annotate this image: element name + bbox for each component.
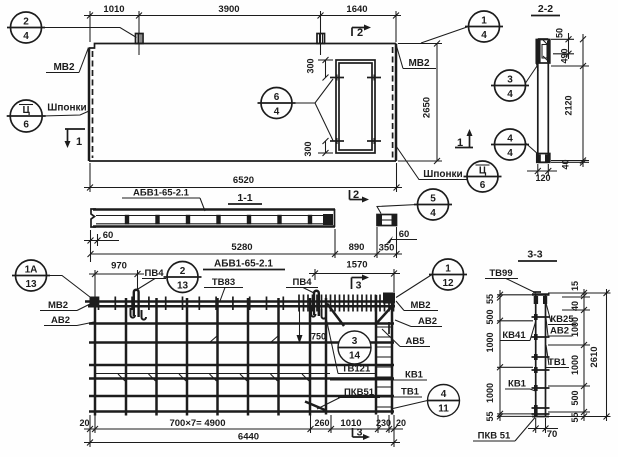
- svg-text:1000: 1000: [570, 355, 580, 375]
- svg-text:МВ2: МВ2: [48, 300, 68, 311]
- svg-text:55: 55: [570, 412, 580, 422]
- svg-text:13: 13: [25, 279, 37, 290]
- svg-text:55: 55: [485, 411, 495, 421]
- svg-text:Шпонки: Шпонки: [47, 103, 86, 114]
- svg-text:ТВ1: ТВ1: [548, 357, 567, 368]
- svg-text:МВ2: МВ2: [53, 62, 75, 73]
- svg-text:2: 2: [353, 189, 359, 201]
- svg-text:2610: 2610: [589, 346, 600, 367]
- svg-text:1640: 1640: [346, 4, 367, 15]
- svg-text:970: 970: [111, 261, 127, 272]
- svg-text:40: 40: [561, 159, 571, 169]
- svg-text:60: 60: [399, 229, 410, 240]
- svg-text:70: 70: [547, 429, 558, 440]
- svg-text:1: 1: [445, 263, 451, 274]
- svg-text:4: 4: [274, 107, 280, 118]
- svg-text:2: 2: [23, 16, 29, 27]
- svg-text:13: 13: [177, 281, 189, 292]
- svg-text:4: 4: [23, 31, 29, 42]
- svg-text:300: 300: [303, 141, 313, 156]
- svg-text:2650: 2650: [422, 97, 433, 118]
- svg-text:20: 20: [396, 418, 406, 428]
- svg-text:АВ2: АВ2: [550, 326, 569, 337]
- svg-text:ПВ4: ПВ4: [145, 268, 165, 279]
- svg-text:Шпонки: Шпонки: [423, 169, 462, 180]
- svg-text:1: 1: [457, 137, 463, 149]
- svg-text:АВ2: АВ2: [418, 316, 437, 327]
- svg-text:230: 230: [376, 418, 391, 428]
- svg-text:5: 5: [430, 193, 436, 204]
- svg-text:1010: 1010: [103, 4, 124, 15]
- svg-text:14: 14: [349, 351, 361, 362]
- svg-text:260: 260: [314, 418, 329, 428]
- svg-text:МВ2: МВ2: [408, 58, 430, 69]
- svg-text:2120: 2120: [564, 95, 574, 115]
- svg-text:Ц: Ц: [23, 105, 31, 116]
- svg-text:1А: 1А: [25, 264, 38, 275]
- svg-text:3: 3: [356, 280, 362, 292]
- svg-text:АВ5: АВ5: [405, 336, 425, 347]
- svg-text:КВ1: КВ1: [508, 379, 527, 390]
- svg-text:1570: 1570: [346, 260, 367, 271]
- svg-text:КВ1: КВ1: [405, 370, 424, 381]
- svg-text:ТВ99: ТВ99: [489, 268, 512, 279]
- svg-text:3900: 3900: [218, 4, 239, 15]
- svg-text:2-2: 2-2: [538, 3, 553, 15]
- svg-text:4: 4: [507, 133, 513, 144]
- svg-text:500: 500: [570, 390, 580, 405]
- svg-text:МВ2: МВ2: [410, 300, 430, 311]
- svg-text:11: 11: [438, 404, 449, 415]
- svg-text:4: 4: [481, 30, 487, 41]
- svg-text:1000: 1000: [485, 332, 495, 352]
- svg-text:890: 890: [349, 242, 365, 253]
- svg-text:КВ25: КВ25: [550, 314, 574, 325]
- svg-text:ПВ4: ПВ4: [293, 277, 313, 288]
- svg-text:5280: 5280: [231, 242, 252, 253]
- svg-text:2: 2: [357, 27, 363, 39]
- svg-text:1: 1: [481, 15, 487, 26]
- svg-text:ТВ83: ТВ83: [212, 277, 235, 288]
- svg-text:АВ2: АВ2: [51, 315, 70, 326]
- svg-text:6: 6: [480, 180, 486, 191]
- svg-text:50: 50: [555, 28, 565, 38]
- svg-text:4: 4: [430, 208, 436, 219]
- svg-text:40: 40: [570, 301, 580, 311]
- svg-text:2: 2: [180, 266, 186, 277]
- svg-text:120: 120: [535, 173, 550, 183]
- svg-text:ПКВ 51: ПКВ 51: [478, 431, 511, 442]
- svg-text:500: 500: [485, 309, 495, 324]
- svg-text:ТВ121: ТВ121: [342, 364, 371, 375]
- svg-text:3: 3: [352, 336, 358, 347]
- svg-text:1-1: 1-1: [237, 192, 252, 204]
- svg-text:750: 750: [311, 332, 326, 342]
- svg-text:1010: 1010: [340, 418, 361, 429]
- svg-text:ТВ1: ТВ1: [401, 387, 420, 398]
- svg-text:55: 55: [485, 294, 495, 304]
- svg-text:АБВ1-65-2.1: АБВ1-65-2.1: [133, 188, 190, 199]
- svg-text:700×7= 4900: 700×7= 4900: [169, 418, 225, 429]
- svg-text:6: 6: [274, 92, 280, 103]
- svg-text:4: 4: [441, 389, 447, 400]
- svg-text:20: 20: [79, 418, 89, 428]
- svg-text:300: 300: [306, 58, 316, 73]
- svg-text:ПКВ51: ПКВ51: [344, 387, 375, 398]
- svg-text:6520: 6520: [233, 175, 254, 186]
- svg-text:Ц: Ц: [479, 165, 487, 176]
- svg-text:60: 60: [103, 230, 114, 241]
- svg-text:1: 1: [76, 136, 82, 148]
- svg-text:КВ41: КВ41: [502, 330, 526, 341]
- svg-text:АБВ1-65-2.1: АБВ1-65-2.1: [214, 259, 273, 270]
- svg-text:4: 4: [507, 89, 513, 100]
- svg-text:6440: 6440: [238, 432, 259, 443]
- svg-text:6: 6: [23, 120, 29, 131]
- svg-text:3-3: 3-3: [527, 249, 542, 261]
- svg-text:350: 350: [379, 243, 395, 254]
- svg-text:490: 490: [560, 48, 570, 63]
- svg-text:15: 15: [570, 281, 580, 291]
- svg-text:4: 4: [507, 148, 513, 159]
- svg-text:12: 12: [442, 278, 454, 289]
- svg-text:3: 3: [507, 74, 513, 85]
- svg-text:1000: 1000: [485, 383, 495, 403]
